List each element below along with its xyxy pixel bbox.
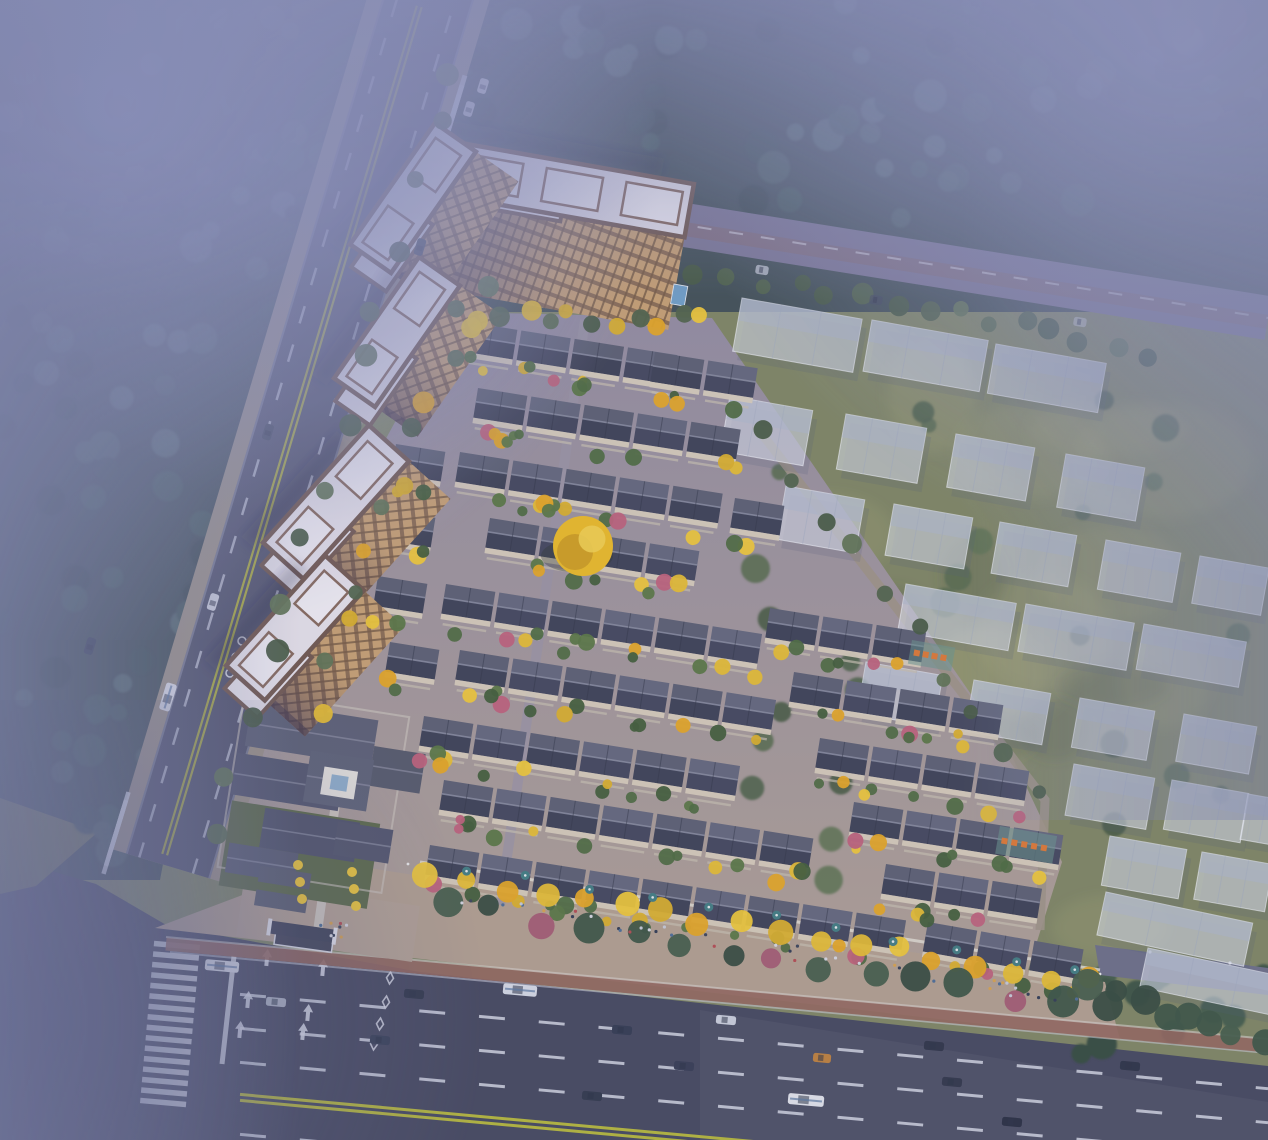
rendered-image-stage [0, 0, 1268, 1140]
fog-layer [0, 0, 1268, 1140]
masterplan-aerial-rendering [0, 0, 1268, 1140]
